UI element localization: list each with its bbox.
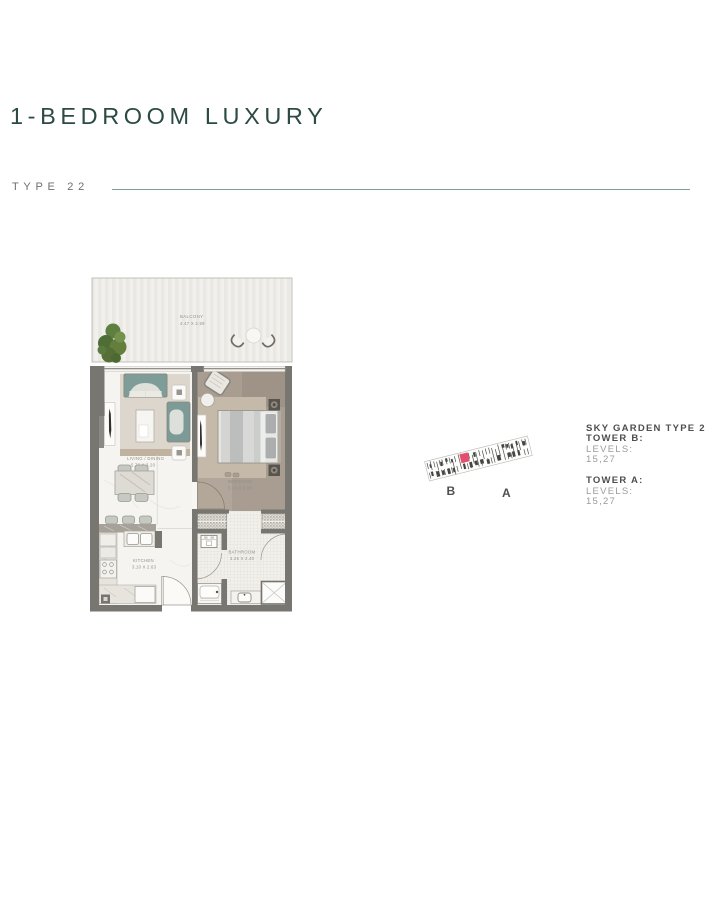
svg-text:BATHROOM: BATHROOM bbox=[229, 550, 256, 555]
svg-text:B: B bbox=[447, 484, 456, 498]
svg-text:BALCONY: BALCONY bbox=[180, 314, 203, 319]
svg-text:3.25 X 2.40: 3.25 X 2.40 bbox=[230, 556, 255, 561]
svg-text:BEDROOM: BEDROOM bbox=[228, 479, 252, 484]
svg-text:4.47 X 2.59: 4.47 X 2.59 bbox=[180, 321, 205, 326]
svg-text:3.10 X 2.63: 3.10 X 2.63 bbox=[132, 565, 157, 570]
svg-text:KITCHEN: KITCHEN bbox=[133, 558, 154, 563]
svg-text:LIVING / DINING: LIVING / DINING bbox=[127, 456, 165, 461]
svg-text:A: A bbox=[502, 486, 511, 500]
svg-text:5.18 X 3.08: 5.18 X 3.08 bbox=[228, 486, 253, 491]
